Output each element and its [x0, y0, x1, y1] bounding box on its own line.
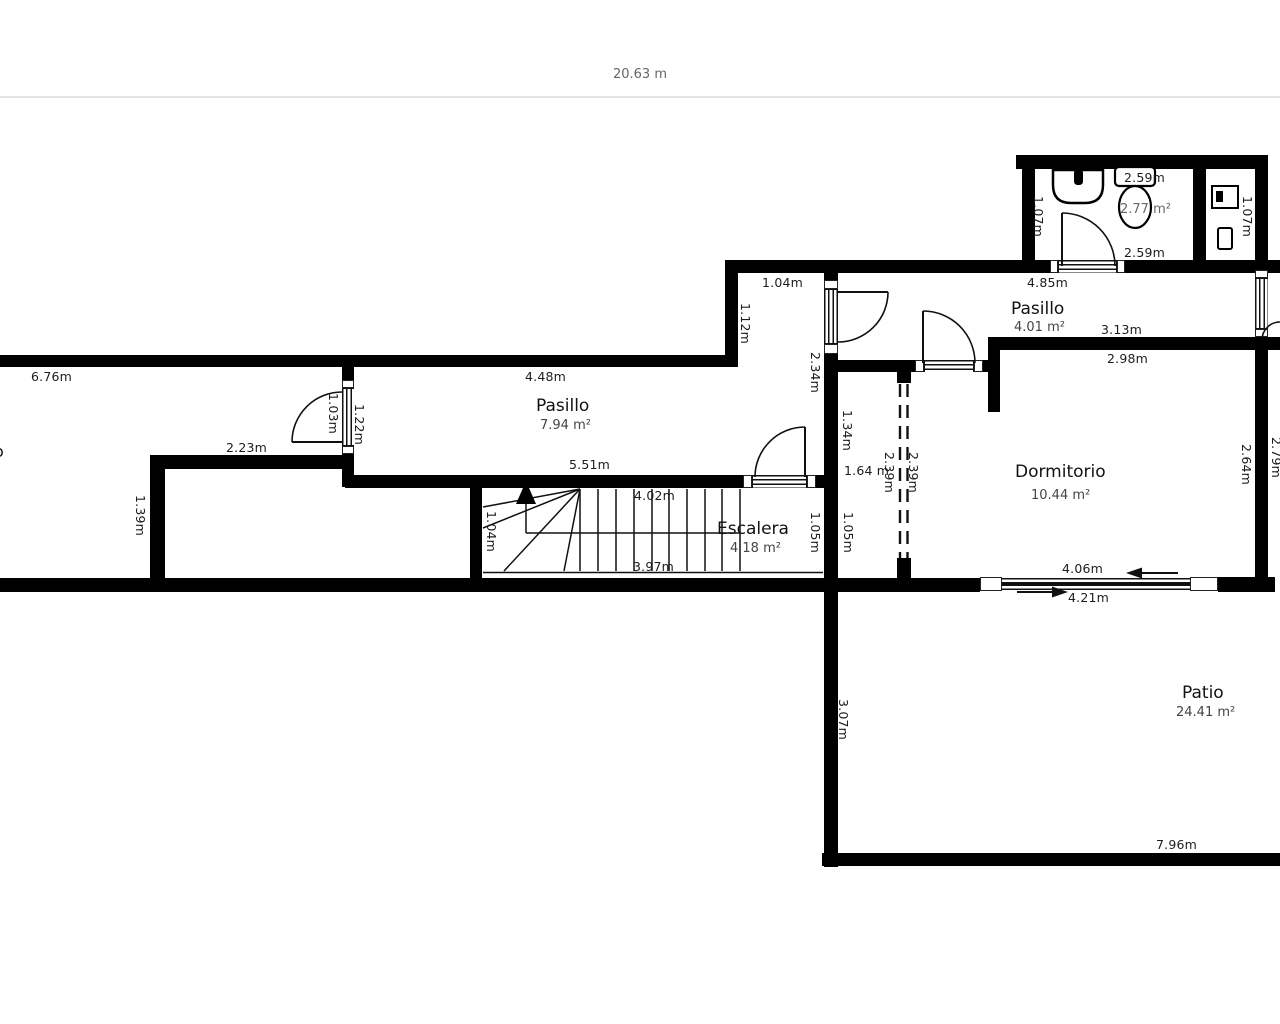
dim-pasillo-left: 1.22m [352, 404, 367, 445]
floor-plan-page: { "scale_ruler": { "label": "20.63 m" },… [0, 0, 1280, 1024]
dim-upper-pasillo-inner: 3.13m [1101, 322, 1142, 337]
dim-left-room-door: 1.03m [326, 393, 341, 434]
room-area-pasillo-main: 7.94 m² [540, 418, 591, 433]
dim-bathroom-left: 1.07m [1031, 196, 1046, 237]
dim-escalera-right: 1.05m [808, 512, 823, 553]
dim-hall-lower: 1.05m [841, 512, 856, 553]
dim-nook-left: 1.12m [738, 303, 753, 344]
dim-dormitorio-window-outer: 4.21m [1068, 590, 1109, 605]
dim-left-room-wall: 1.39m [133, 495, 148, 536]
room-title-cutoff: o [0, 442, 4, 461]
dim-hall-upper: 1.34m [840, 410, 855, 451]
dim-dashed-left: 2.39m [882, 452, 897, 493]
room-area-bathroom: 2.77 m² [1120, 202, 1171, 217]
dim-stairs-bottom: 3.97m [633, 559, 674, 574]
room-title-pasillo-upper: Pasillo [1011, 299, 1064, 319]
sink-icon [1053, 169, 1103, 203]
dim-bathroom-top: 2.59m [1124, 170, 1165, 185]
plan-graphics [0, 0, 1280, 1024]
room-title-pasillo-main: Pasillo [536, 396, 589, 416]
dim-dormitorio-right: 2.64m [1239, 444, 1254, 485]
stairs-up-arrow-icon [516, 481, 536, 504]
dim-left-room-top: 6.76m [31, 369, 72, 384]
dim-patio-bottom: 7.96m [1156, 837, 1197, 852]
dim-upper-pasillo: 4.85m [1027, 275, 1068, 290]
dim-dormitorio-top: 2.98m [1107, 351, 1148, 366]
dim-patio-left: 3.07m [836, 699, 851, 740]
room-area-pasillo-upper: 4.01 m² [1014, 320, 1065, 335]
dim-nook-right: 2.34m [808, 352, 823, 393]
dim-bathroom-bottom: 2.59m [1124, 245, 1165, 260]
room-area-dormitorio: 10.44 m² [1031, 488, 1090, 503]
room-title-dormitorio: Dormitorio [1015, 462, 1106, 482]
dim-stairs-top: 4.02m [634, 488, 675, 503]
dim-pasillo-bottom: 5.51m [569, 457, 610, 472]
dim-left-room-inner: 2.23m [226, 440, 267, 455]
dim-pasillo-top: 4.48m [525, 369, 566, 384]
dim-nook-width: 1.04m [762, 275, 803, 290]
dim-dashed-right: 2.39m [906, 452, 921, 493]
shower-fixture-icon [1212, 186, 1238, 249]
room-title-patio: Patio [1182, 683, 1224, 703]
dim-dormitorio-window: 4.06m [1062, 561, 1103, 576]
dim-outer-right: 2.79m [1269, 437, 1280, 478]
dim-stairs-left: 1.04m [484, 511, 499, 552]
room-area-patio: 24.41 m² [1176, 705, 1235, 720]
dim-bathroom-right: 1.07m [1240, 196, 1255, 237]
room-area-escalera: 4.18 m² [730, 541, 781, 556]
room-title-escalera: Escalera [717, 519, 789, 539]
